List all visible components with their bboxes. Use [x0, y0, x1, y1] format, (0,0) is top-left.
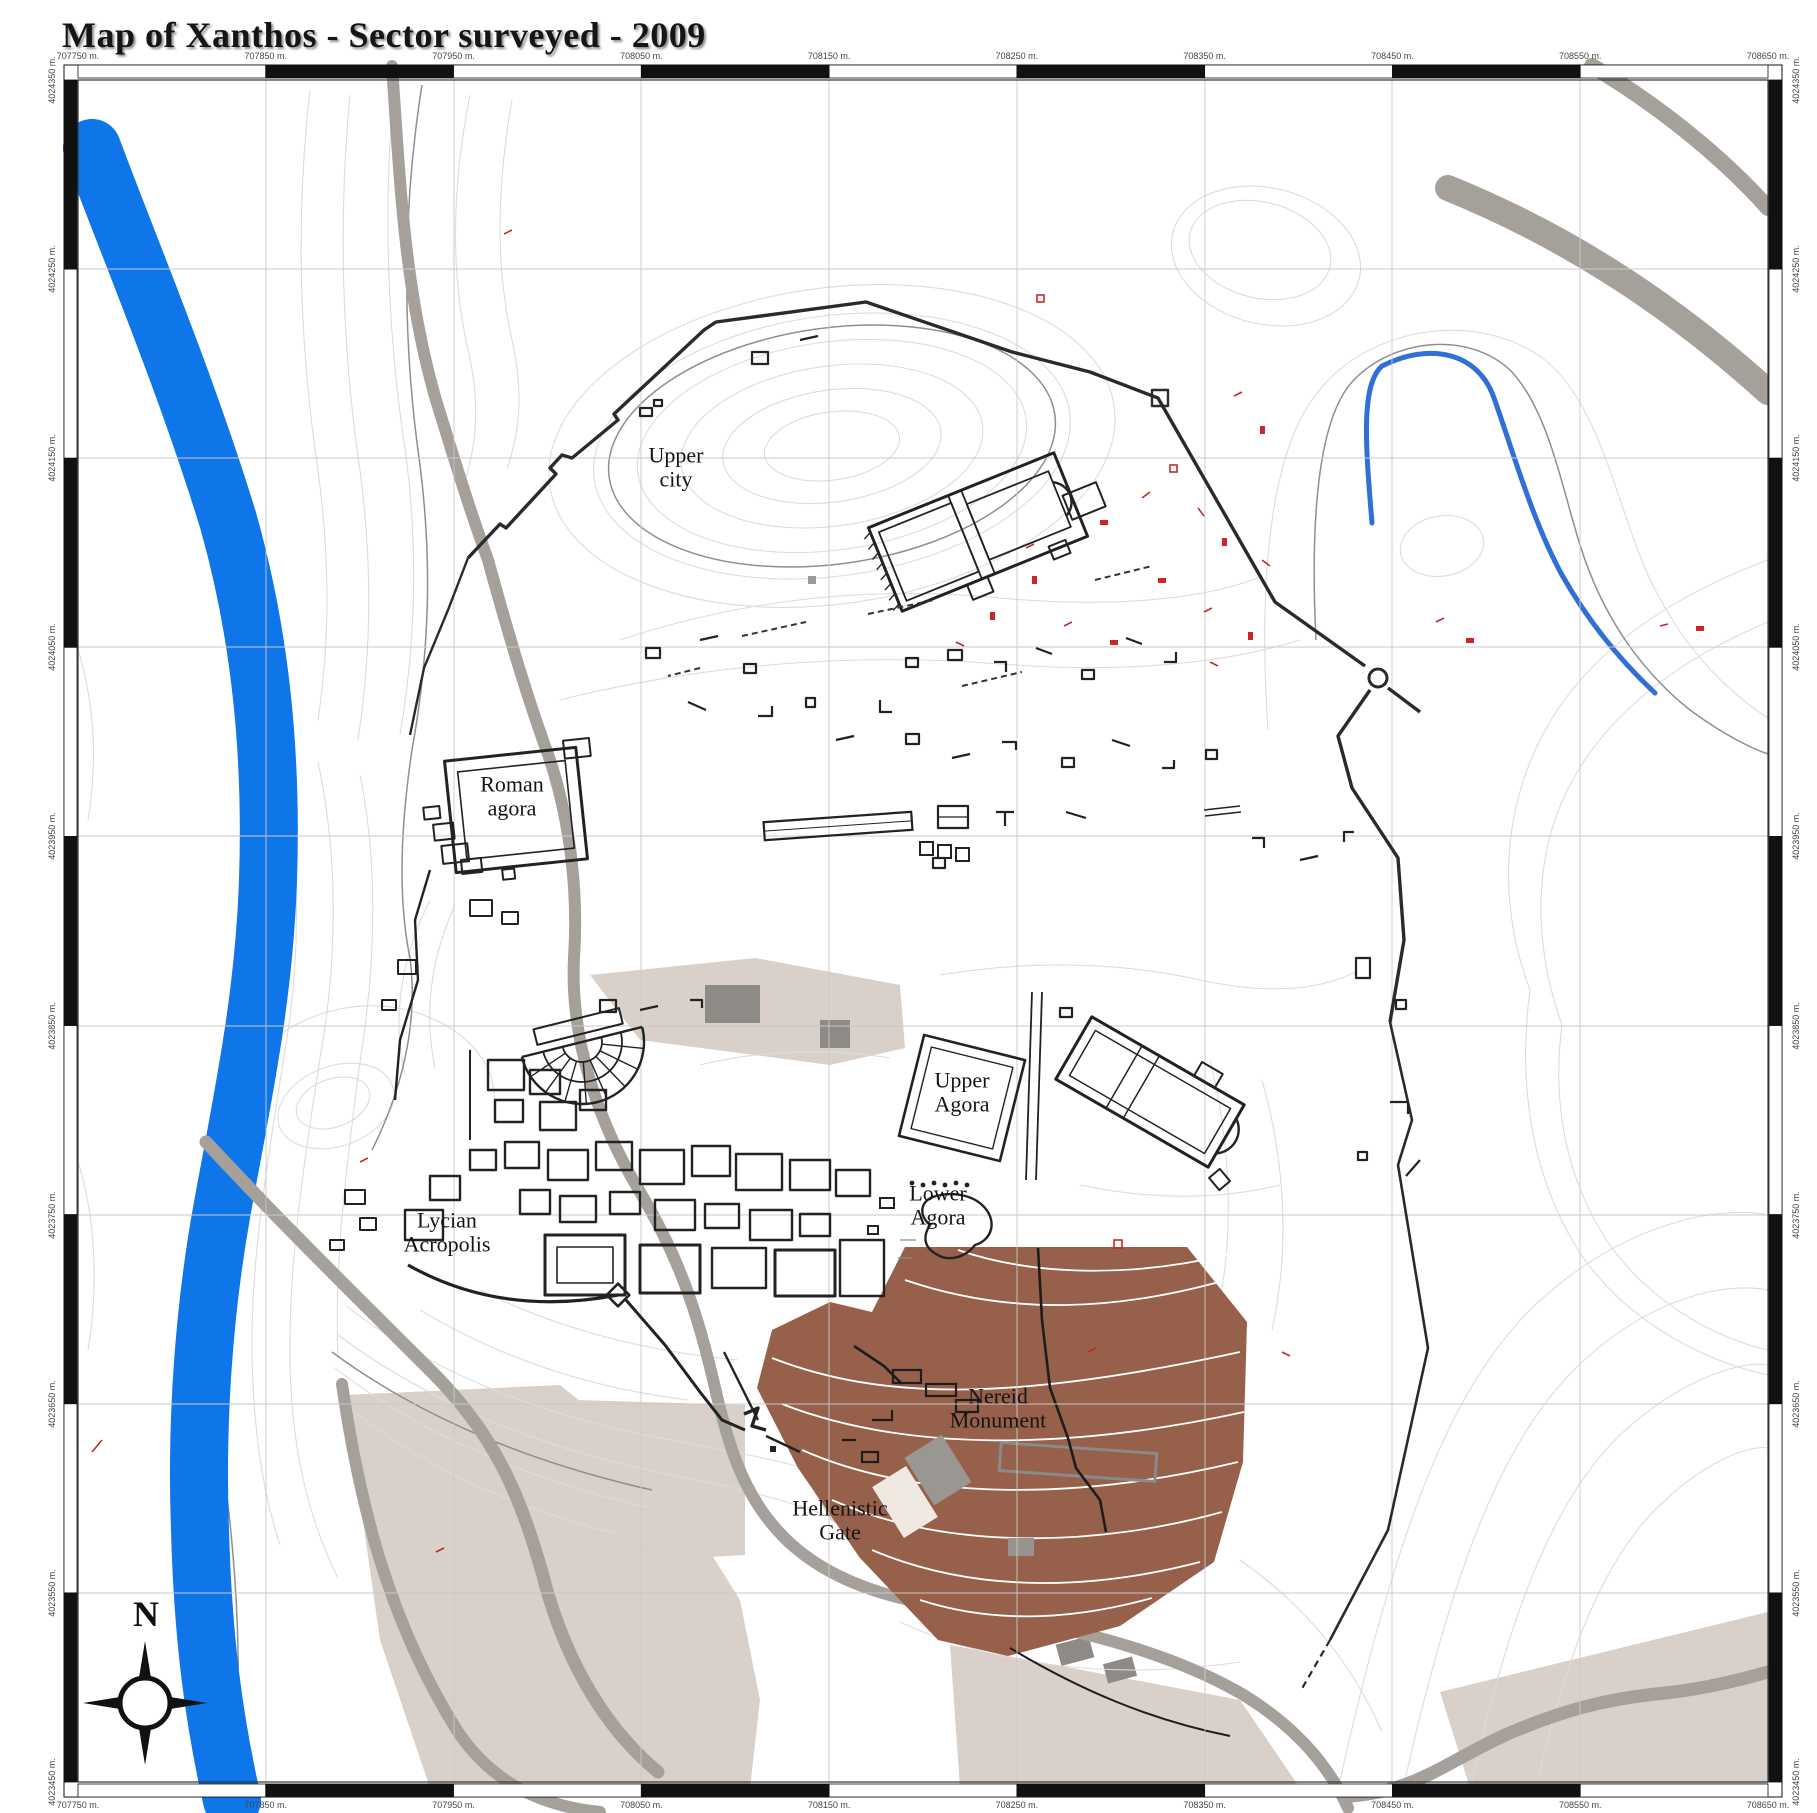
tick-bottom-3: 708050 m. [620, 1800, 663, 1810]
tick-left-7: 4023650 m. [47, 1380, 57, 1428]
tick-bottom-8: 708550 m. [1559, 1800, 1602, 1810]
tick-top-5: 708250 m. [996, 51, 1039, 61]
tick-right-0: 4024350 m. [1791, 56, 1801, 104]
label-lycian-acropolis-line1: Lycian [404, 1208, 491, 1232]
label-upper-agora-line2: Agora [935, 1092, 990, 1116]
label-hellenistic-gate-line1: Hellenistic [792, 1496, 887, 1520]
tick-right-5: 4023850 m. [1791, 1002, 1801, 1050]
tick-left-1: 4024250 m. [47, 245, 57, 293]
label-upper-agora: Upper Agora [935, 1068, 990, 1116]
tick-right-7: 4023650 m. [1791, 1380, 1801, 1428]
tick-top-2: 707950 m. [432, 51, 475, 61]
label-roman-agora: Roman agora [480, 772, 544, 820]
tick-left-8: 4023550 m. [47, 1569, 57, 1617]
tick-left-2: 4024150 m. [47, 434, 57, 482]
tick-bottom-5: 708250 m. [996, 1800, 1039, 1810]
tick-right-6: 4023750 m. [1791, 1191, 1801, 1239]
label-roman-agora-line1: Roman [480, 772, 544, 796]
label-upper-agora-line1: Upper [935, 1068, 990, 1092]
tick-top-9: 708650 m. [1747, 51, 1790, 61]
tick-top-8: 708550 m. [1559, 51, 1602, 61]
tick-left-3: 4024050 m. [47, 624, 57, 672]
label-hellenistic-gate-line2: Gate [792, 1520, 887, 1544]
tick-bottom-2: 707950 m. [432, 1800, 475, 1810]
tick-right-1: 4024250 m. [1791, 245, 1801, 293]
tick-left-5: 4023850 m. [47, 1002, 57, 1050]
label-upper-city-line1: Upper [649, 443, 704, 467]
tick-right-4: 4023950 m. [1791, 813, 1801, 861]
label-lycian-acropolis: Lycian Acropolis [404, 1208, 491, 1256]
xanthos-map-canvas [0, 0, 1817, 1813]
label-roman-agora-line2: agora [480, 796, 544, 820]
north-label: N [133, 1593, 159, 1635]
tick-left-6: 4023750 m. [47, 1191, 57, 1239]
tick-bottom-6: 708350 m. [1183, 1800, 1226, 1810]
label-lower-agora: Lower Agora [909, 1181, 966, 1229]
label-upper-city-line2: city [649, 467, 704, 491]
label-lower-agora-line1: Lower [909, 1181, 966, 1205]
tick-top-4: 708150 m. [808, 51, 851, 61]
map-page: Map of Xanthos - Sector surveyed - 2009 … [0, 0, 1817, 1813]
map-title: Map of Xanthos - Sector surveyed - 2009 [62, 14, 706, 56]
tick-left-0: 4024350 m. [47, 56, 57, 104]
tick-bottom-7: 708450 m. [1371, 1800, 1414, 1810]
label-hellenistic-gate: Hellenistic Gate [792, 1496, 887, 1544]
tick-right-9: 4023450 m. [1791, 1758, 1801, 1806]
label-lycian-acropolis-line2: Acropolis [404, 1232, 491, 1256]
tick-top-3: 708050 m. [620, 51, 663, 61]
tick-top-0: 707750 m. [57, 51, 100, 61]
tick-top-1: 707850 m. [245, 51, 288, 61]
label-upper-city: Upper city [649, 443, 704, 491]
label-nereid-monument-line1: Nereid [950, 1384, 1047, 1408]
tick-right-2: 4024150 m. [1791, 434, 1801, 482]
tick-top-7: 708450 m. [1371, 51, 1414, 61]
tick-left-4: 4023950 m. [47, 813, 57, 861]
label-nereid-monument-line2: Monument [950, 1408, 1047, 1432]
tick-right-3: 4024050 m. [1791, 624, 1801, 672]
tick-right-8: 4023550 m. [1791, 1569, 1801, 1617]
tick-bottom-4: 708150 m. [808, 1800, 851, 1810]
tick-bottom-0: 707750 m. [57, 1800, 100, 1810]
tick-top-6: 708350 m. [1183, 51, 1226, 61]
tick-bottom-1: 707850 m. [245, 1800, 288, 1810]
tick-bottom-9: 708650 m. [1747, 1800, 1790, 1810]
tick-left-9: 4023450 m. [47, 1758, 57, 1806]
label-nereid-monument: Nereid Monument [950, 1384, 1047, 1432]
label-lower-agora-line2: Agora [909, 1205, 966, 1229]
